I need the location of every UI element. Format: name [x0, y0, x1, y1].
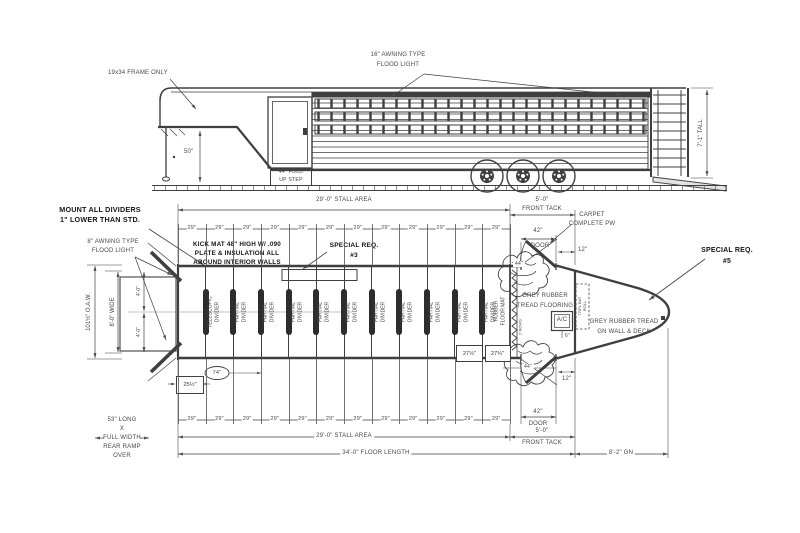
dim-25-box: 25½" [176, 376, 204, 394]
dim-extension-bottom [206, 359, 207, 424]
segment-dim-bottom: 29" [242, 416, 253, 423]
dim-extension-top [455, 224, 456, 265]
dim-extension-bottom [427, 359, 428, 424]
special-req-5-note: SPECIAL REQ. #5 [701, 246, 753, 267]
dim-extension-top [289, 224, 290, 265]
special3-plate [282, 270, 357, 281]
dim-12-top-label: 12" [578, 247, 587, 254]
mount-dividers-note: MOUNT ALL DIVIDERS 1" LOWER THAN STD. [59, 205, 140, 225]
segment-dim-bottom: 29" [380, 416, 391, 423]
flood-light-8-note: 8" AWNING TYPE FLOOD LIGHT [87, 238, 138, 256]
gn-coupler-mark [661, 316, 665, 320]
front-tack-label-bottom: FRONT TACK [520, 440, 564, 447]
segment-dim-bottom: 29" [408, 416, 419, 423]
grey-floor-note: GREY RUBBER TREAD FLOORING [517, 292, 573, 311]
door-label-top: DOOR [531, 243, 550, 250]
door-label-bottom: DOOR [527, 421, 550, 428]
dim-extension-top [482, 224, 483, 265]
dim-extension-bottom [261, 359, 262, 424]
segment-dim-top: 29" [408, 225, 419, 232]
dim-27b-box: 27¾" [485, 345, 511, 362]
rear-ramp-note: 53" LONG X FULL WIDTH REAR RAMP OVER [103, 416, 141, 461]
side-elevation-view [152, 74, 727, 192]
segment-dim-top: 29" [352, 225, 363, 232]
segment-dim-top: 29" [435, 225, 446, 232]
frame-note: 19x34 FRAME ONLY [108, 70, 168, 77]
divider-label-text: PARTIALDIVIDER [318, 302, 331, 322]
flood-light-16-note: 16" AWNING TYPE FLOOD LIGHT [371, 50, 426, 70]
divider-label-text: TELESCOPICDIVIDER [207, 296, 220, 328]
door-42-top: 42" [531, 228, 544, 235]
segment-dim-bottom: 29" [435, 416, 446, 423]
front-tack-dim-top: 5'-0" FRONT TACK [520, 196, 564, 213]
vent-row [315, 112, 646, 121]
dim-74-label: 74" [213, 370, 222, 377]
dim-extension-bottom [316, 359, 317, 424]
segment-dim-bottom: 29" [352, 416, 363, 423]
segment-dim-top: 29" [242, 225, 253, 232]
stall-area-dim-top: 29'-0" STALL AREA [314, 197, 374, 204]
segment-dim-bottom: 29" [186, 416, 197, 423]
dim-extension-bottom [510, 359, 511, 424]
stall-area-dim-bottom: 29'-0" STALL AREA [314, 433, 374, 440]
segment-dim-bottom: 29" [214, 416, 225, 423]
door-handle [303, 128, 307, 135]
dim-12-bottom-label: 12" [562, 376, 571, 383]
segment-dim-bottom: 29" [325, 416, 336, 423]
divider-label-text: PARTIALDIVIDER [346, 302, 359, 322]
dim-44-top-label: 44" [513, 261, 525, 267]
door-42-bottom: 42" [531, 409, 544, 416]
dim-extension-bottom [482, 359, 483, 424]
dim-extension-top [316, 224, 317, 265]
grey-gn-note: GREY RUBBER TREAD GN WALL & DECK [590, 318, 659, 337]
trailer-drawing-page: 19x34 FRAME ONLY 16" AWNING TYPE FLOOD L… [0, 0, 800, 533]
dim-27a-box: 27½" [456, 345, 483, 362]
segment-dim-bottom: 29" [269, 416, 280, 423]
segment-dim-top: 29" [380, 225, 391, 232]
dim-extension-top [510, 224, 511, 265]
dim-extension-bottom [344, 359, 345, 424]
dim-extension-top [399, 224, 400, 265]
segment-dim-bottom: 29" [491, 416, 502, 423]
vent-row [315, 125, 646, 134]
carpet-note: CARPET COMPLETE PW [569, 211, 616, 229]
dim-extension-top [233, 224, 234, 265]
dim-extension-top [178, 224, 179, 265]
dim-extension-bottom [455, 359, 456, 424]
divider-label-text: PARTIALDIVIDER [290, 302, 303, 322]
divider-label-text: PARTIALDIVIDER [373, 302, 386, 322]
dim-extension-bottom [289, 359, 290, 424]
segment-dim-top: 29" [214, 225, 225, 232]
divider-label-text: PARTIALDIVIDER [401, 302, 414, 322]
segment-dim-top: 29" [297, 225, 308, 232]
dim-extension-top [261, 224, 262, 265]
dim-44-bottom-label: 44" [522, 364, 534, 370]
segment-dim-top: 29" [186, 225, 197, 232]
dim-extension-top [344, 224, 345, 265]
segment-dim-top: 29" [269, 225, 280, 232]
rear-ramp-plan [120, 277, 176, 351]
dim-50-label: 50" [184, 149, 193, 156]
special5-leader [649, 259, 705, 300]
front-tack-5ft-bottom: 5'-0" [534, 428, 551, 435]
segment-dim-top: 29" [491, 225, 502, 232]
vent-row [315, 99, 646, 108]
divider-label-text: PARTIALDIVIDER [235, 302, 248, 322]
frame-note-leader [170, 79, 196, 109]
step-label: 44" FOLD UP STEP [279, 169, 304, 184]
tack-detail-scribble [498, 252, 549, 297]
gooseneck-dim: 8'-2" GN [607, 450, 635, 457]
dim-extension-bottom [178, 359, 179, 424]
dim-extension-top [206, 224, 207, 265]
corner-flood-light [151, 343, 181, 372]
dim-extension-bottom [399, 359, 400, 424]
dim-extension-top [372, 224, 373, 265]
segment-dim-top: 29" [463, 225, 474, 232]
divider-label-text: PARTIALDIVIDER [263, 302, 276, 322]
segment-dim-top: 29" [325, 225, 336, 232]
divider-label-text: PARTIALDIVIDER [484, 302, 497, 322]
dim-extension-top [427, 224, 428, 265]
dim-extension-bottom [233, 359, 234, 424]
ac-label: A/C [557, 317, 568, 324]
floor-length-dim: 34'-0" FLOOR LENGTH [340, 450, 411, 457]
ac-dim-label: 6" [565, 333, 570, 339]
dim-extension-bottom [372, 359, 373, 424]
divider-label-text: PARTIALDIVIDER [429, 302, 442, 322]
rear-gate [651, 88, 688, 177]
segment-dim-bottom: 29" [463, 416, 474, 423]
divider-label-text: PARTIALDIVIDER [456, 302, 469, 322]
ground-line [152, 186, 727, 191]
segment-dim-bottom: 29" [297, 416, 308, 423]
